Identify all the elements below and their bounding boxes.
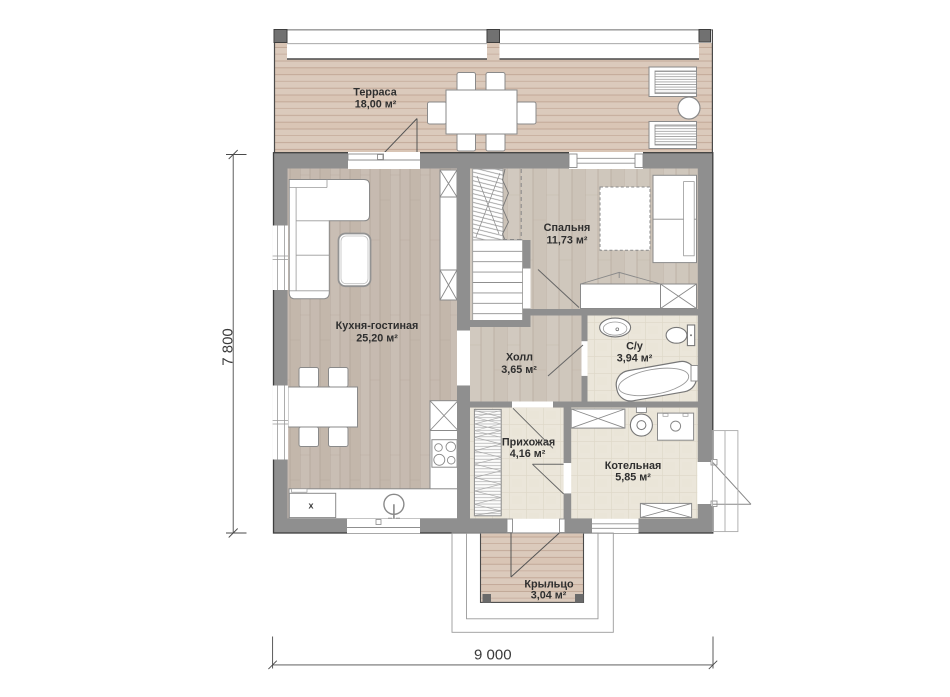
svg-text:Холл: Холл (506, 352, 533, 364)
svg-text:9 000: 9 000 (474, 647, 512, 664)
svg-text:7 800: 7 800 (220, 328, 237, 366)
svg-text:Кухня-гостиная: Кухня-гостиная (336, 320, 419, 332)
svg-text:3,04 м²: 3,04 м² (531, 589, 567, 601)
svg-text:18,00 м²: 18,00 м² (355, 99, 397, 111)
svg-text:4,16 м²: 4,16 м² (510, 448, 546, 460)
svg-text:11,73 м²: 11,73 м² (546, 234, 587, 246)
svg-text:x: x (308, 501, 313, 511)
svg-text:25,20 м²: 25,20 м² (356, 333, 398, 345)
svg-text:С/у: С/у (626, 341, 643, 353)
svg-text:3,94 м²: 3,94 м² (617, 352, 653, 364)
svg-text:3,65 м²: 3,65 м² (501, 364, 537, 376)
svg-text:Спальня: Спальня (544, 222, 591, 234)
svg-text:5,85 м²: 5,85 м² (615, 471, 651, 483)
svg-text:Котельная: Котельная (605, 460, 662, 472)
svg-text:Терраса: Терраса (353, 87, 397, 99)
